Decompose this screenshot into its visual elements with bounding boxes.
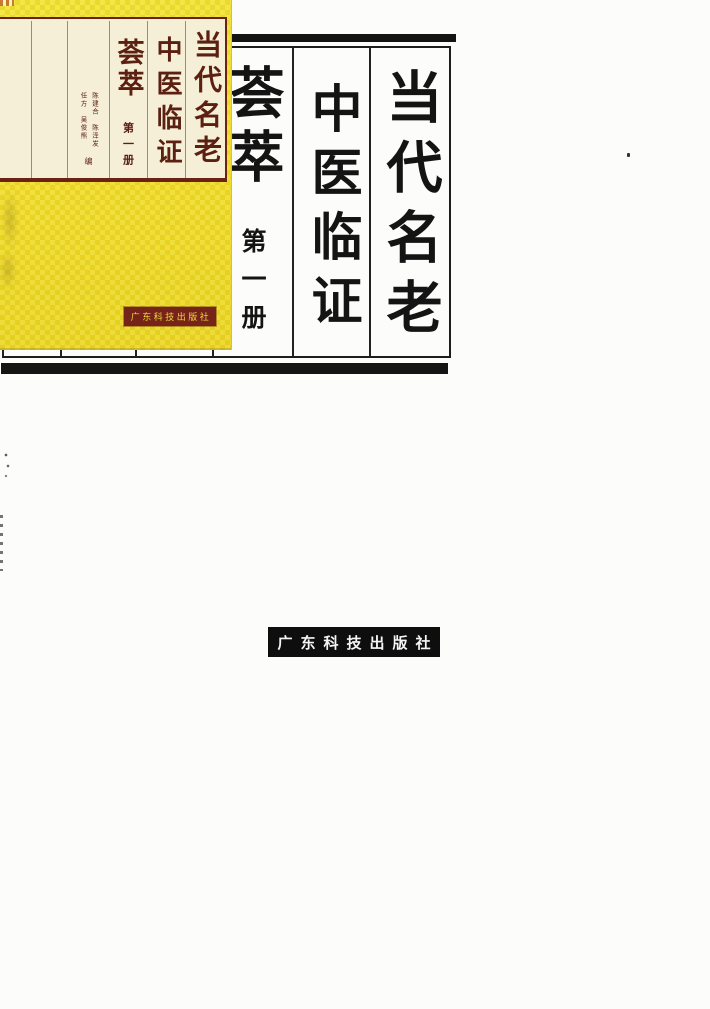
cover-title-column-zhongyilinzheng: 中医临证	[148, 22, 186, 178]
editors-column-right: 陈建合 陈泽发	[91, 92, 98, 148]
cover-smudge	[0, 250, 16, 290]
scan-artifact-speck	[627, 153, 630, 157]
scan-artifact-specks	[4, 452, 10, 478]
cover-title-column-huicui-volume: 荟萃 第一册	[109, 22, 147, 178]
cover-title-text: 荟萃	[115, 38, 142, 100]
cover-title-text: 当代名老	[192, 30, 220, 170]
cover-photo: 当代名老 中医临证 荟萃 第一册 任方 吴俊熊 陈建合 陈泽发 编 广东科技出版…	[0, 0, 232, 350]
volume-label: 第一册	[240, 228, 265, 342]
publisher-bar: 广东科技出版社	[268, 627, 440, 657]
title-column-zhongyilinzheng: 中医临证	[293, 48, 370, 356]
cover-smudge	[2, 190, 18, 250]
title-text: 中医临证	[306, 82, 357, 338]
cover-publisher-name: 广东科技出版社	[131, 310, 212, 323]
cover-column-divider	[31, 21, 32, 178]
title-column-dangdaiminglao: 当代名老	[370, 48, 450, 356]
cover-title-column-dangdaiminglao: 当代名老	[186, 22, 226, 178]
publisher-name: 广东科技出版社	[277, 632, 438, 653]
scan-artifact-binding-marks	[0, 515, 3, 571]
scanned-book-page: 当代名老 中医临证 荟萃 第一册 广东科技出版社 当代名老 中医临证 荟萃 第一…	[0, 0, 710, 1009]
cover-corner-print-mark	[0, 0, 14, 6]
cover-volume-label: 第一册	[123, 122, 134, 170]
cover-editors-block: 任方 吴俊熊 陈建合 陈泽发	[68, 92, 109, 148]
title-text: 荟萃	[225, 64, 280, 192]
frame-bottom-thick-bar	[1, 363, 448, 374]
editor-role-label: 编	[68, 156, 109, 167]
editors-column-left: 任方 吴俊熊	[80, 92, 87, 148]
frame-bottom-thin-line	[2, 356, 450, 358]
cover-title-text: 中医临证	[154, 36, 180, 172]
title-text: 当代名老	[382, 68, 438, 348]
cover-publisher-bar: 广东科技出版社	[124, 307, 216, 326]
